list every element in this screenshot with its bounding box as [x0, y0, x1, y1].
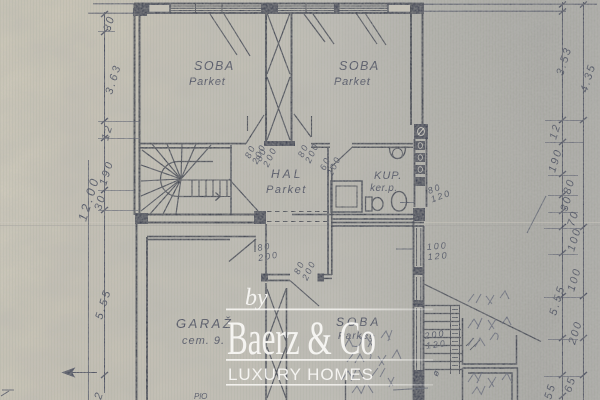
svg-text:Parket: Parket: [189, 76, 226, 88]
svg-text:cem. 9.: cem. 9.: [182, 335, 225, 347]
svg-text:Parket: Parket: [266, 184, 307, 196]
svg-text:KUP.: KUP.: [374, 170, 402, 182]
svg-text:SOBA: SOBA: [339, 59, 380, 73]
svg-text:Parket: Parket: [334, 76, 371, 88]
svg-text:Baerz & Co: Baerz & Co: [227, 312, 376, 365]
svg-text:GARAŽ: GARAŽ: [176, 316, 233, 331]
svg-text:ker.p.: ker.p.: [370, 183, 398, 194]
svg-text:LUXURY HOMES: LUXURY HOMES: [228, 365, 373, 384]
svg-text:SOBA: SOBA: [194, 59, 235, 73]
svg-text:120: 120: [427, 250, 449, 262]
svg-text:by: by: [245, 285, 268, 311]
svg-text:PlO: PlO: [194, 392, 207, 400]
svg-text:HAL: HAL: [271, 167, 303, 181]
